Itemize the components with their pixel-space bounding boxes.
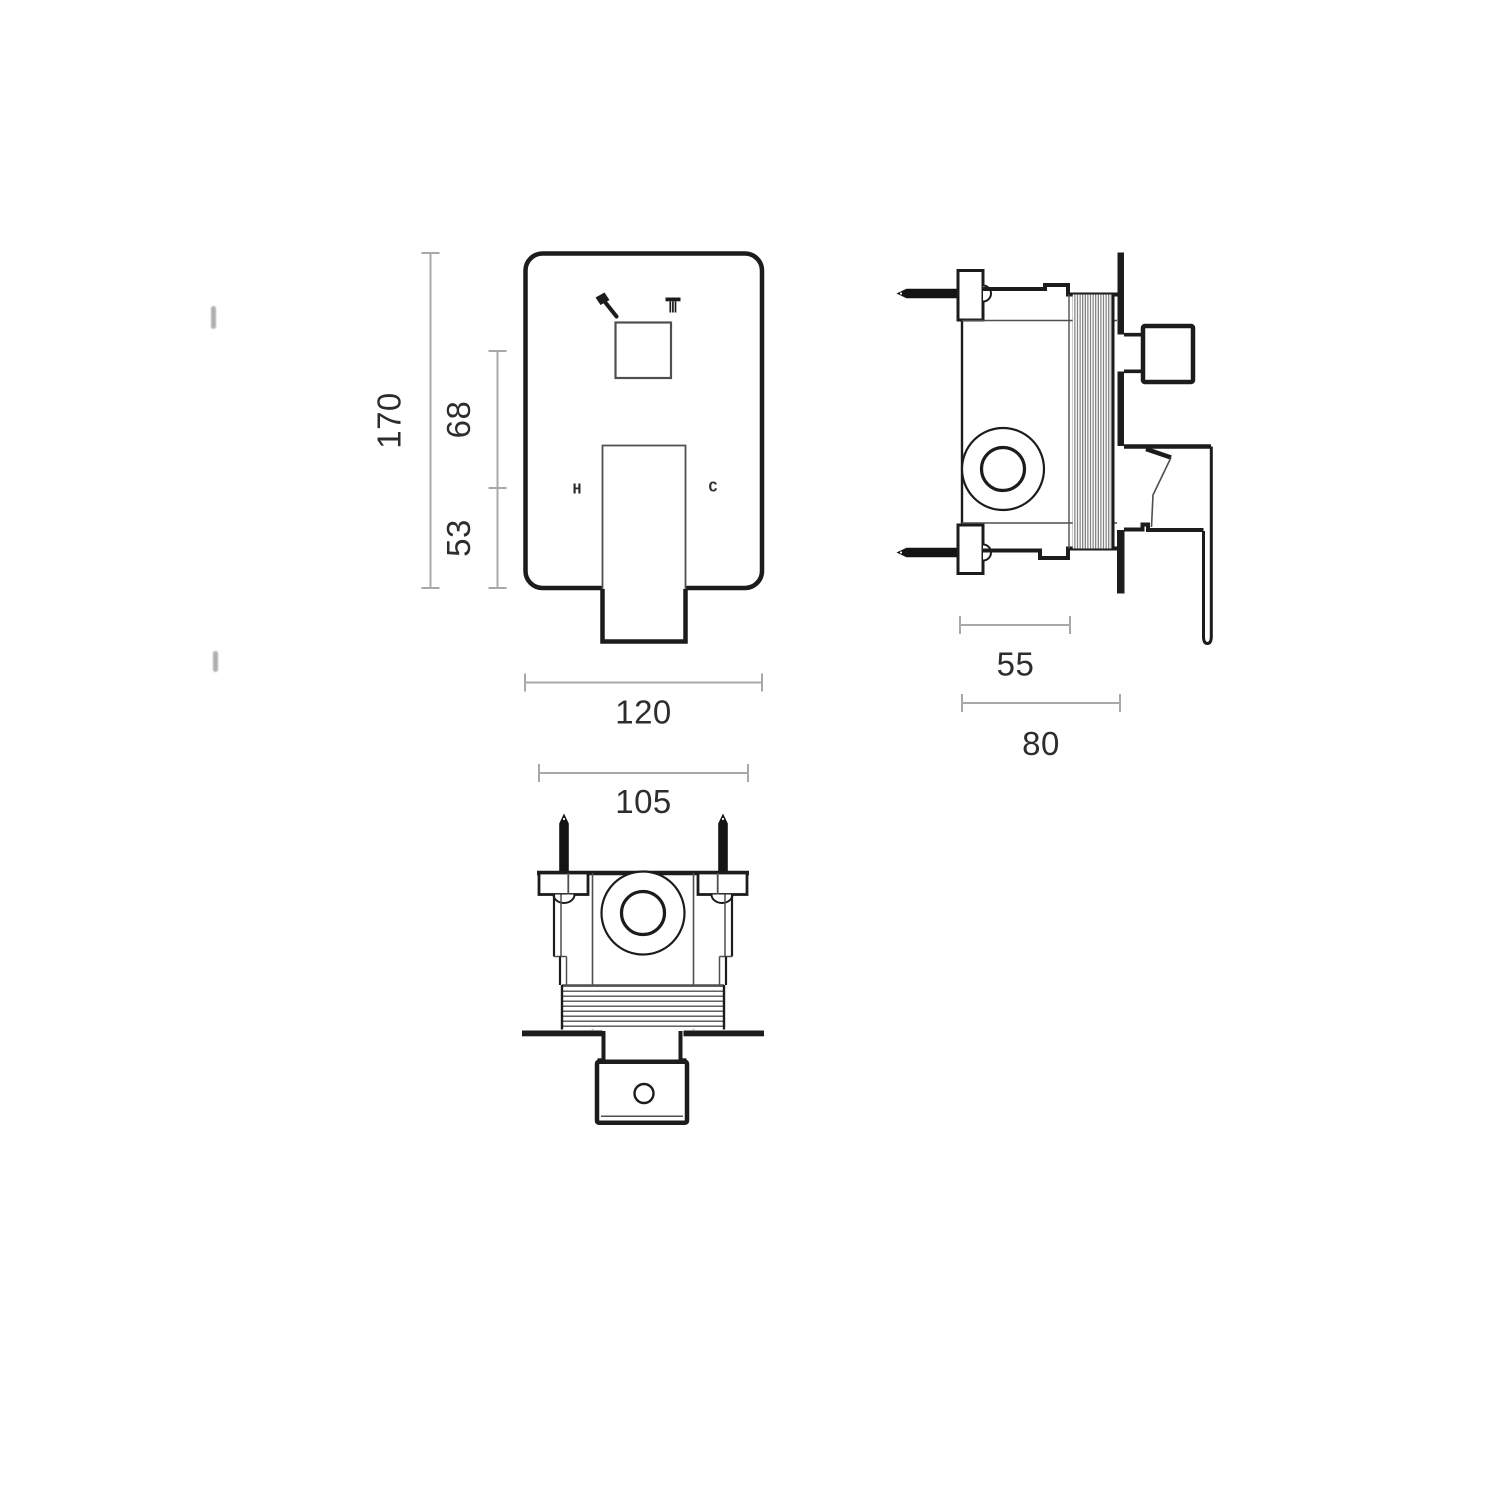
front-view: 170 68 53 120 (371, 253, 763, 731)
page-edge-artifacts (211, 306, 218, 672)
mounting-screw-right (718, 814, 728, 875)
inlet-port-inner (622, 892, 665, 935)
bracket-wing-right (698, 873, 747, 903)
washer-right (712, 895, 733, 904)
wall-plate-bottom (1117, 530, 1125, 594)
technical-drawing-page: 170 68 53 120 (0, 0, 1500, 1500)
handle-upper (603, 446, 686, 590)
dim-body-depth: 55 (960, 616, 1070, 683)
dim-label-55: 55 (997, 646, 1035, 683)
dim-total-depth: 80 (962, 694, 1120, 762)
handle-side (1124, 447, 1211, 644)
wall-plate-right (684, 1031, 765, 1037)
washer-left (554, 895, 575, 904)
drawing-canvas: 170 68 53 120 (0, 0, 1500, 1500)
body-bottom-edge (983, 549, 1118, 559)
hot-label: H (572, 482, 581, 499)
handle-end (597, 1062, 687, 1123)
mounting-screw-left (559, 814, 569, 875)
threaded-collar (1073, 295, 1114, 549)
bottom-view: 105 (522, 764, 764, 1123)
dim-segments: 68 53 (440, 351, 507, 588)
threaded-collar (562, 985, 724, 1030)
dim-plate-width: 120 (525, 674, 762, 731)
wall-plate-mid (1118, 372, 1125, 447)
handle-bottom-view (597, 1031, 687, 1123)
dim-label-105: 105 (615, 783, 672, 820)
wall-plate-left (522, 1031, 603, 1037)
handle-lower (603, 588, 686, 642)
bracket-bottom (958, 525, 983, 574)
dim-label-170: 170 (371, 392, 408, 449)
dim-label-53: 53 (440, 519, 477, 557)
dim-mounting-width: 105 (539, 764, 748, 820)
dim-total-height: 170 (371, 253, 440, 588)
wall-plate-top (1118, 253, 1125, 335)
body-top-edge (983, 285, 1118, 295)
dim-label-120: 120 (615, 694, 672, 731)
bracket-top (958, 271, 983, 321)
bracket-wing-left (539, 873, 588, 903)
cold-label: C (708, 480, 717, 497)
side-view: 55 80 (897, 253, 1212, 763)
lever-bar (1204, 447, 1212, 644)
dim-label-80: 80 (1022, 725, 1060, 762)
diverter-button (616, 323, 672, 379)
inlet-port-inner (982, 448, 1025, 491)
diverter-knob-side (1124, 326, 1193, 382)
dim-label-68: 68 (440, 401, 477, 439)
